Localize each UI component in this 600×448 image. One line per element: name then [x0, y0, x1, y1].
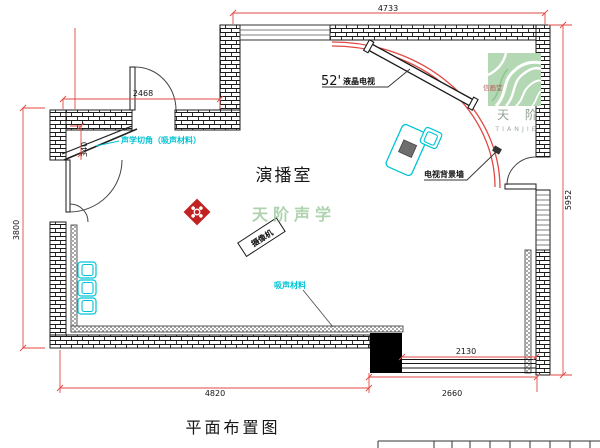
chair-2 — [78, 280, 96, 296]
logo: 信画堂 天 阶 TIANJIE — [483, 53, 543, 133]
left-door — [66, 160, 122, 222]
dim-bottom-right: 2660 — [442, 389, 462, 398]
watermark: 天阶声学 — [252, 205, 336, 224]
label-tv-size: 52' — [321, 74, 341, 89]
ceiling-ornament — [184, 199, 211, 226]
wall-right-lower — [536, 250, 550, 375]
dim-top: 4733 — [378, 4, 398, 13]
wall-entry-right — [175, 110, 240, 130]
column-block — [370, 333, 402, 373]
window-top — [240, 25, 330, 40]
floor-plan-canvas: 4733 2468 340 3800 5952 4820 2660 2130 声… — [0, 0, 600, 448]
logo-name-en: TIANJIE — [494, 126, 538, 133]
dim-left: 3800 — [12, 220, 21, 240]
wall-left-lower — [50, 222, 66, 348]
dim-bottom-inner: 2130 — [456, 347, 476, 356]
label-tv-name: 液晶电视 — [343, 76, 375, 86]
lining-right — [525, 250, 531, 373]
logo-name-cn: 天 阶 — [497, 108, 543, 122]
label-tv-wall: 电视背景墙 — [424, 169, 464, 179]
dim-right: 5952 — [564, 190, 573, 210]
wall-top — [330, 25, 536, 40]
floor-plan-svg: 4733 2468 340 3800 5952 4820 2660 2130 声… — [0, 0, 600, 448]
room-label: 演播室 — [256, 166, 313, 186]
desk — [385, 123, 429, 176]
drawing-title: 平面布置图 — [185, 418, 280, 437]
curved-feature-wall — [332, 42, 500, 188]
logo-seal-text: 信画堂 — [483, 83, 503, 92]
brick-walls — [50, 25, 550, 375]
tv-screen — [368, 44, 473, 106]
logo-mark: 信画堂 — [483, 53, 541, 106]
dim-entry: 2468 — [133, 89, 153, 98]
wall-left-upper — [50, 110, 66, 160]
guest-chairs — [78, 262, 96, 314]
dim-bottom-left: 4820 — [205, 389, 225, 398]
wall-bottom — [50, 335, 370, 348]
chair-3 — [78, 298, 96, 314]
lining-left — [71, 225, 77, 332]
lining-bottom — [71, 326, 403, 332]
wall-right-panel — [536, 190, 550, 250]
label-acoustic-corner: 声学切角（吸声材料） — [120, 135, 201, 145]
title-block-table — [378, 441, 600, 448]
dim-corner-cut: 340 — [80, 142, 89, 157]
tv-unit — [364, 40, 478, 110]
label-acoustic-material: 吸声材料 — [274, 280, 306, 290]
bottom-right-ledge — [402, 360, 536, 373]
chair-1 — [78, 262, 96, 278]
right-door — [505, 157, 536, 189]
